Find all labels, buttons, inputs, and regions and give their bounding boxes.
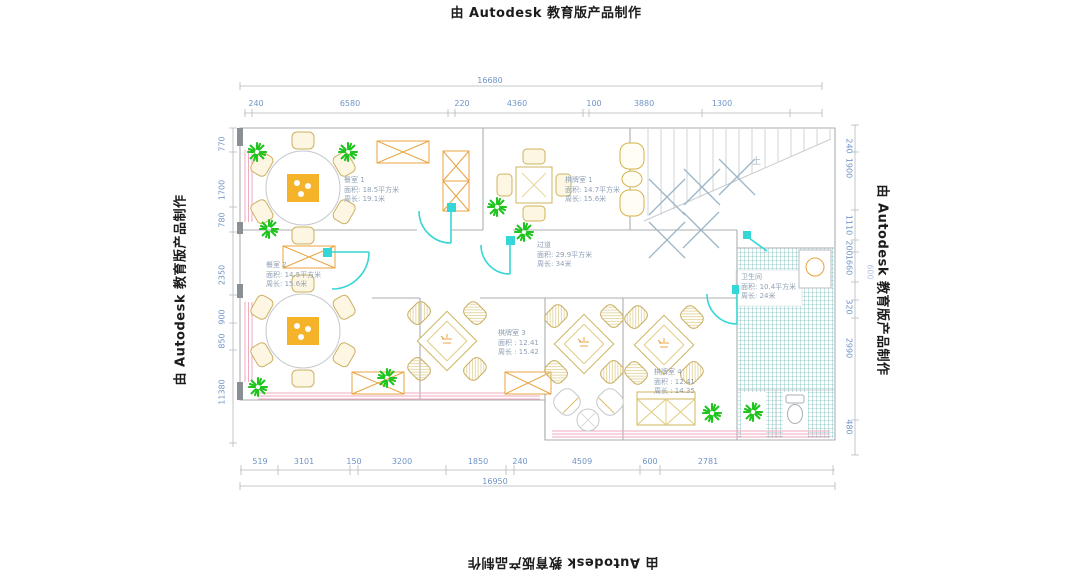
- lounge-chairs: [620, 143, 644, 216]
- dim-label: 240: [845, 138, 854, 153]
- plant-icon: [260, 220, 278, 238]
- dim-label: 100: [586, 99, 601, 108]
- room-area: 面积 : 12.41: [498, 339, 539, 349]
- room-perimeter: 周长: 34米: [537, 260, 592, 270]
- dim-label: 780: [218, 212, 227, 227]
- round-table-2: [249, 275, 357, 387]
- room-annotation: 棋牌室 3 面积 : 12.41 周长 : 15.42: [498, 329, 539, 358]
- plant-icon: [249, 378, 267, 396]
- sink-basin-icon: [806, 258, 824, 276]
- dim-label: 770: [218, 136, 227, 151]
- room-annotation: 餐室 2 面积: 14.5平方米 周长: 15.6米: [266, 261, 321, 290]
- window-left-lower: [245, 302, 252, 382]
- diamond-table-2: [542, 302, 625, 385]
- dim-label: 3880: [634, 99, 654, 108]
- dim-label: 3101: [294, 457, 314, 466]
- room-area: 面积: 29.9平方米: [537, 251, 592, 261]
- room-name: 棋牌室 4: [654, 368, 695, 378]
- room-area: 面积: 18.5平方米: [344, 186, 399, 196]
- floorplan-drawing: [0, 0, 1074, 576]
- stairs-up-label: 上: [752, 154, 761, 167]
- dim-label: 240: [512, 457, 527, 466]
- room-name: 餐室 2: [266, 261, 321, 271]
- dim-label: 200: [845, 240, 854, 255]
- door-2: [481, 236, 515, 274]
- window-left-upper: [245, 150, 252, 222]
- dim-label: 519: [252, 457, 267, 466]
- room-name: 棋牌室 1: [565, 176, 620, 186]
- square-table-set: [497, 149, 571, 221]
- room-name: 过道: [537, 241, 592, 251]
- plant-icon: [339, 143, 357, 161]
- dim-label: 480: [845, 419, 854, 434]
- room-annotation: 卫生间 面积: 10.4平方米 周长: 24米: [739, 273, 798, 302]
- dim-label: 16950: [482, 477, 507, 486]
- room-annotation: 棋牌室 1 面积: 14.7平方米 周长: 15.6米: [565, 176, 620, 205]
- dim-label: 3200: [392, 457, 412, 466]
- room-annotation: 过道 面积: 29.9平方米 周长: 34米: [537, 241, 592, 270]
- dim-label: 1660: [845, 255, 854, 275]
- dim-label: 2781: [698, 457, 718, 466]
- room-area: 面积 : 12.41: [654, 378, 695, 388]
- dim-label: 600: [866, 264, 875, 279]
- dim-label: 16680: [477, 76, 502, 85]
- room-area: 面积: 14.5平方米: [266, 271, 321, 281]
- room-perimeter: 周长 : 14.35: [654, 387, 695, 397]
- toilet-2-icon: [786, 395, 804, 424]
- dim-label: 1900: [845, 158, 854, 178]
- dim-label: 220: [454, 99, 469, 108]
- sideboard-4: [505, 372, 551, 394]
- dim-label: 1110: [845, 215, 854, 235]
- room-name: 餐室 1: [344, 176, 399, 186]
- tall-cabinet: [443, 151, 469, 211]
- dim-label: 1700: [218, 180, 227, 200]
- plant-icon: [248, 143, 266, 161]
- dim-label: 4509: [572, 457, 592, 466]
- dim-label: 320: [845, 299, 854, 314]
- plant-icon: [515, 223, 533, 241]
- room-perimeter: 周长: 15.6米: [266, 280, 321, 290]
- door-1: [419, 203, 456, 243]
- dim-label: 150: [346, 457, 361, 466]
- dim-label: 6580: [340, 99, 360, 108]
- room-perimeter: 周长: 24米: [741, 292, 796, 302]
- dim-label: 4360: [507, 99, 527, 108]
- room-area: 面积: 10.4平方米: [741, 283, 796, 293]
- dim-label: 850: [218, 333, 227, 348]
- dim-label: 2990: [845, 338, 854, 358]
- room-perimeter: 周长 : 15.42: [498, 348, 539, 358]
- room-perimeter: 周长: 15.6米: [565, 195, 620, 205]
- dim-label: 1850: [468, 457, 488, 466]
- dim-label: 900: [218, 309, 227, 324]
- room-area: 面积: 14.7平方米: [565, 186, 620, 196]
- armchair-set: [550, 385, 627, 431]
- cad-floorplan-sheet: 由 Autodesk 教育版产品制作 由 Autodesk 教育版产品制作 由 …: [0, 0, 1074, 576]
- dim-label: 2350: [218, 265, 227, 285]
- room-annotation: 棋牌室 4 面积 : 12.41 周长 : 14.35: [654, 368, 695, 397]
- room-name: 卫生间: [741, 273, 796, 283]
- diamond-table-1: [405, 299, 488, 382]
- room-perimeter: 周长: 19.1米: [344, 195, 399, 205]
- room-name: 棋牌室 3: [498, 329, 539, 339]
- plant-icon: [703, 404, 721, 422]
- plant-icon: [488, 198, 506, 216]
- bench-sofa: [637, 392, 695, 425]
- room-annotation: 餐室 1 面积: 18.5平方米 周长: 19.1米: [344, 176, 399, 205]
- dim-label: 600: [642, 457, 657, 466]
- dim-label: 1300: [712, 99, 732, 108]
- dim-label: 11380: [218, 379, 227, 404]
- sideboard-1: [377, 141, 429, 163]
- dim-label: 240: [248, 99, 263, 108]
